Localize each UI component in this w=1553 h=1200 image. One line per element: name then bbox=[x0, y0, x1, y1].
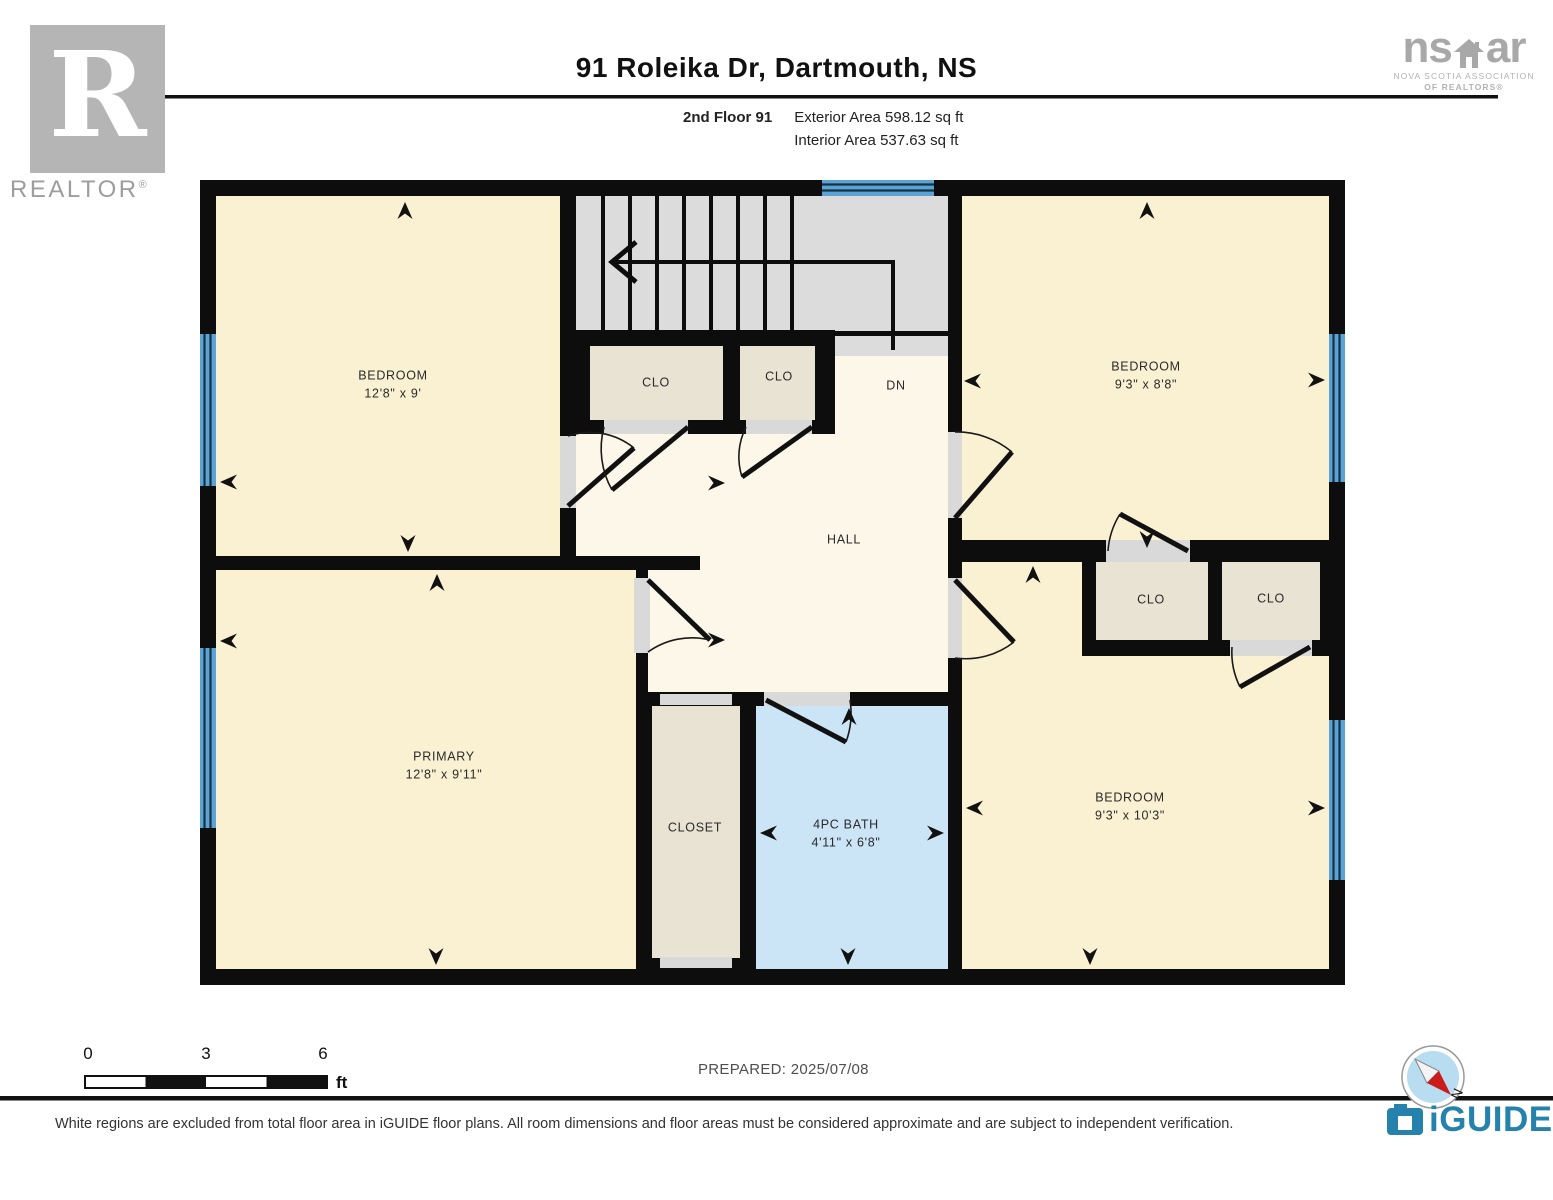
closets-under-stairs bbox=[560, 330, 835, 434]
door-gap-clo-top-left bbox=[604, 420, 688, 434]
registered-mark: ® bbox=[139, 179, 150, 191]
room-name: CLO bbox=[765, 368, 793, 386]
room-label-stairs-dn: DN bbox=[886, 377, 905, 395]
door-gap-bedroom-br bbox=[948, 578, 962, 658]
prepared-date: PREPARED: 2025/07/08 bbox=[698, 1061, 869, 1078]
room-label-clo-top-left: CLO bbox=[642, 374, 670, 392]
nsar-logo: ns ar NOVA SCOTIA ASSOCIATION OF REALTOR… bbox=[1384, 28, 1544, 92]
realtor-wordmark-text: REALTOR bbox=[10, 176, 139, 203]
closet-top-gap bbox=[660, 694, 732, 705]
room-label-bath: 4PC BATH 4'11" x 6'8" bbox=[811, 817, 880, 852]
header-rule bbox=[55, 95, 1498, 99]
floor-plan-svg bbox=[0, 0, 1553, 1200]
window-stairwell-icon bbox=[822, 180, 934, 196]
nsar-logo-right-text: ar bbox=[1486, 28, 1526, 68]
exterior-area: Exterior Area 598.12 sq ft bbox=[794, 109, 963, 126]
realtor-wordmark: REALTOR® bbox=[10, 176, 190, 204]
scale-bar bbox=[85, 1076, 327, 1088]
floor-label: 2nd Floor 91 bbox=[683, 109, 772, 126]
iguide-logo: iGUIDE bbox=[1386, 1100, 1553, 1140]
room-name: CLOSET bbox=[668, 819, 722, 837]
room-label-bedroom-br: BEDROOM 9'3" x 10'3" bbox=[1095, 790, 1165, 825]
closet-bottom-gap bbox=[660, 957, 732, 968]
nsar-logo-left-text: ns bbox=[1403, 28, 1452, 68]
room-name: 4PC BATH bbox=[811, 817, 880, 835]
room-name: HALL bbox=[827, 531, 861, 549]
room-label-primary: PRIMARY 12'8" x 9'11" bbox=[406, 749, 483, 784]
disclaimer-text: White regions are excluded from total fl… bbox=[55, 1116, 1233, 1132]
nsar-caption-2: OF REALTORS® bbox=[1384, 82, 1544, 92]
room-name: BEDROOM bbox=[1095, 790, 1165, 808]
room-name: BEDROOM bbox=[358, 368, 428, 386]
scale-tick-0: 0 bbox=[83, 1044, 92, 1064]
room-dims: 9'3" x 8'8" bbox=[1111, 376, 1181, 394]
room-label-clo-top-right: CLO bbox=[765, 368, 793, 386]
window-bedroom-br-icon bbox=[1329, 720, 1345, 880]
room-label-closet: CLOSET bbox=[668, 819, 722, 837]
scale-tick-6: 6 bbox=[318, 1044, 327, 1064]
page-title: 91 Roleika Dr, Dartmouth, NS bbox=[0, 52, 1553, 84]
room-label-bedroom-tr: BEDROOM 9'3" x 8'8" bbox=[1111, 359, 1181, 394]
realtor-logo-letter: R bbox=[48, 36, 146, 154]
room-name: CLO bbox=[1257, 590, 1285, 608]
camera-icon bbox=[1386, 1103, 1424, 1137]
realtor-logo-icon: R bbox=[30, 25, 165, 173]
door-gap-primary bbox=[634, 578, 650, 653]
room-label-clo-right-1: CLO bbox=[1137, 591, 1165, 609]
door-gap-bedroom-tr bbox=[948, 432, 962, 518]
room-name: DN bbox=[886, 377, 905, 395]
scale-unit: ft bbox=[336, 1073, 347, 1093]
room-name: CLO bbox=[642, 374, 670, 392]
room-name: BEDROOM bbox=[1111, 359, 1181, 377]
iguide-wordmark: iGUIDE bbox=[1429, 1100, 1553, 1140]
hall-opening bbox=[700, 556, 737, 570]
room-name: CLO bbox=[1137, 591, 1165, 609]
window-primary-icon bbox=[200, 648, 216, 828]
room-dims: 4'11" x 6'8" bbox=[811, 834, 880, 852]
interior-area: Interior Area 537.63 sq ft bbox=[794, 132, 963, 149]
nsar-caption-1: NOVA SCOTIA ASSOCIATION bbox=[1384, 71, 1544, 81]
room-dims: 12'8" x 9'11" bbox=[406, 766, 483, 784]
nsar-logo-mark: ns ar bbox=[1384, 28, 1544, 68]
window-bedroom-tr-icon bbox=[1329, 334, 1345, 482]
door-gap-bedroom-tl bbox=[560, 436, 576, 508]
room-name: PRIMARY bbox=[406, 749, 483, 767]
stair-edge bbox=[823, 331, 948, 336]
scale-tick-3: 3 bbox=[201, 1044, 210, 1064]
footer-divider bbox=[0, 1096, 1553, 1101]
floor-info: 2nd Floor 91 Exterior Area 598.12 sq ft … bbox=[683, 109, 963, 149]
room-label-clo-right-2: CLO bbox=[1257, 590, 1285, 608]
room-label-bedroom-tl: BEDROOM 12'8" x 9' bbox=[358, 368, 428, 403]
house-icon bbox=[1454, 38, 1484, 68]
floor-info-spacer bbox=[683, 132, 772, 149]
floor-plan-page: 91 Roleika Dr, Dartmouth, NS 2nd Floor 9… bbox=[0, 0, 1553, 1200]
window-bedroom-tl-icon bbox=[200, 334, 216, 486]
hall-floor-lower bbox=[648, 570, 737, 692]
room-label-hall: HALL bbox=[827, 531, 861, 549]
room-dims: 12'8" x 9' bbox=[358, 385, 428, 403]
room-dims: 9'3" x 10'3" bbox=[1095, 807, 1165, 825]
